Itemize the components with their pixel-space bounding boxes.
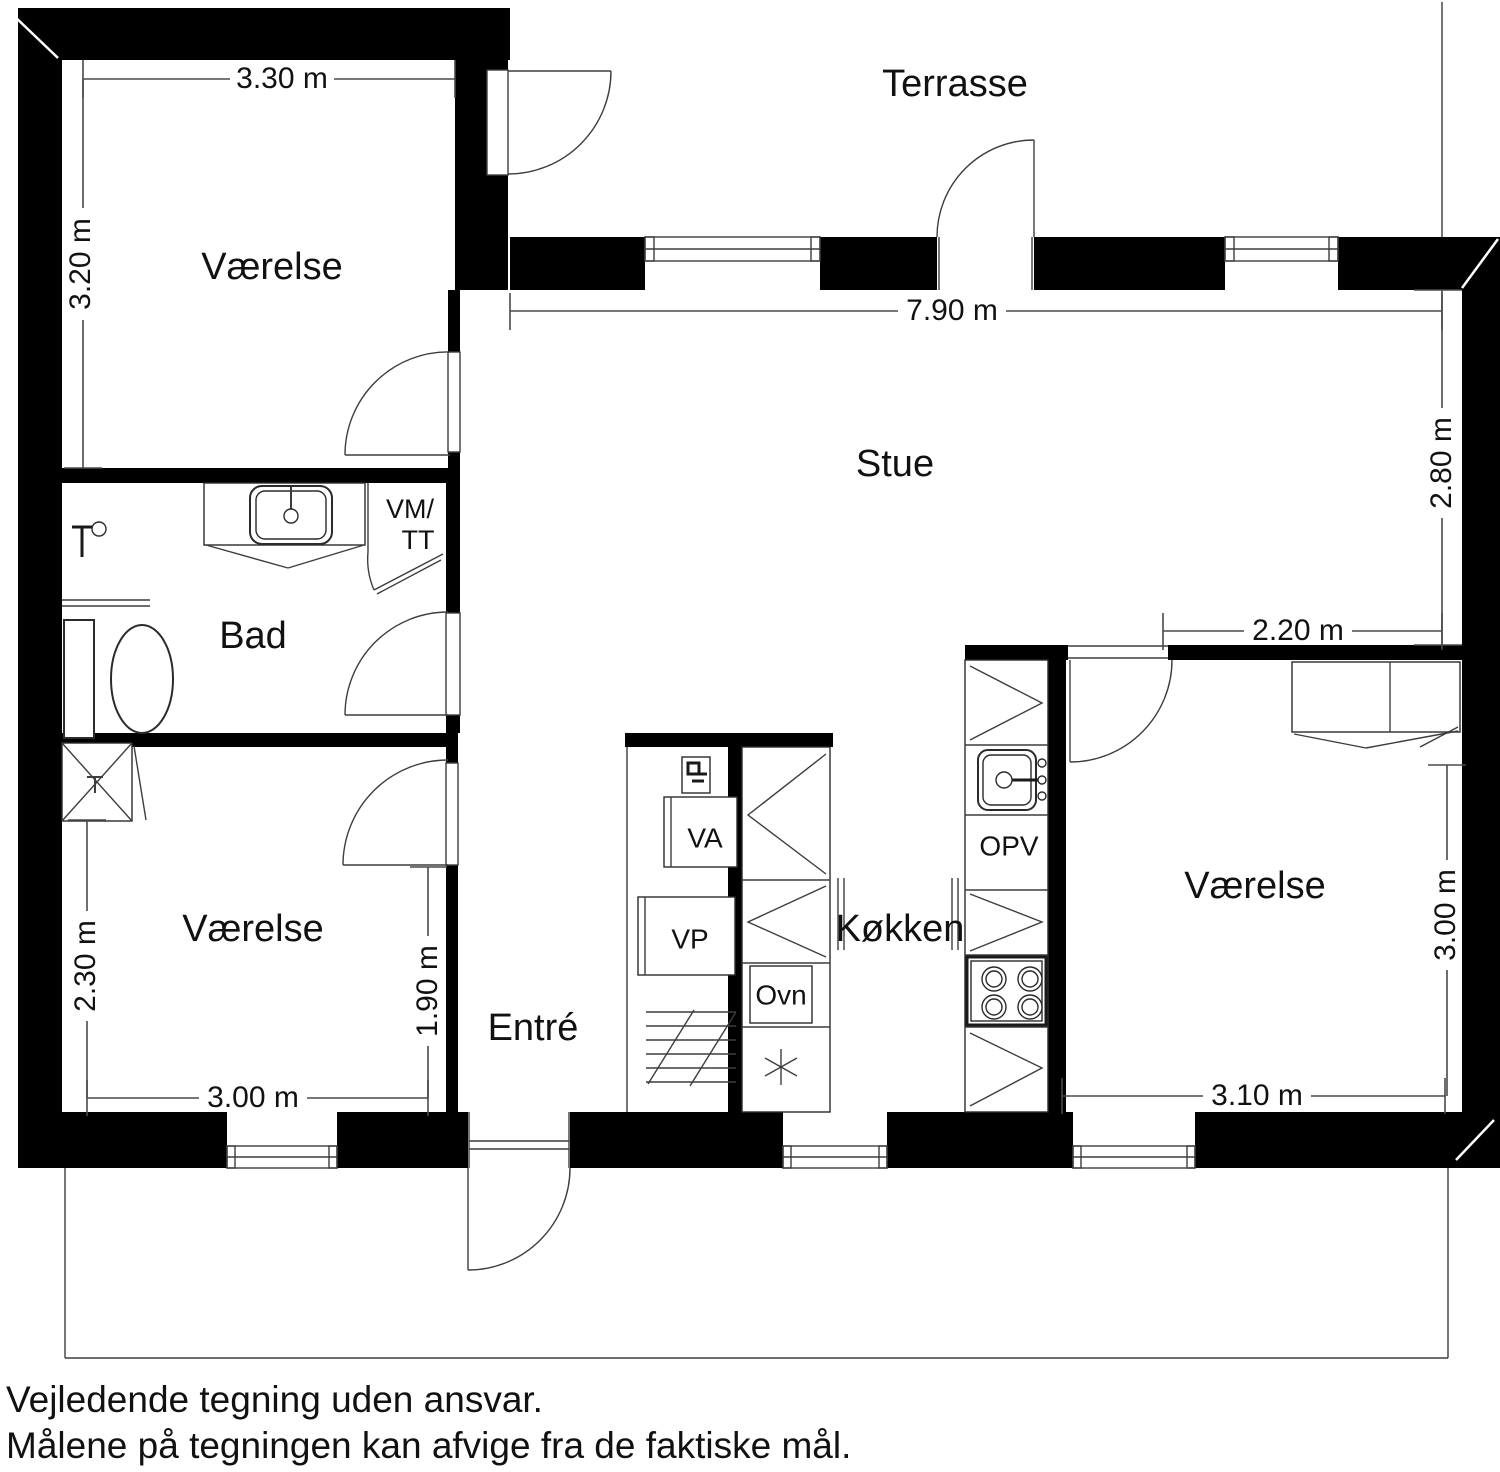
wall-segment <box>1046 652 1066 1112</box>
wall-segment <box>448 290 460 352</box>
wardrobe-bedroom-bl <box>62 743 146 821</box>
window <box>645 237 820 290</box>
wall-segment <box>446 715 460 733</box>
dim-label: 3.00 m <box>1429 869 1462 961</box>
dim-bedroom-bl-width: 3.00 m <box>87 1080 428 1116</box>
disclaimer-line-1: Vejledende tegning uden ansvar. <box>6 1379 543 1420</box>
door-bathroom <box>345 612 460 715</box>
disclaimer: Vejledende tegning uden ansvar. Målene p… <box>6 1379 851 1466</box>
door-bedroom-bl <box>343 760 458 865</box>
dim-label: 2.30 m <box>69 920 102 1012</box>
electrical-panel-icon <box>682 757 710 793</box>
kitchen-units: Ovn <box>742 660 1048 1112</box>
door-entrance <box>468 1112 570 1270</box>
dim-label: 3.30 m <box>236 62 328 95</box>
shower-valve <box>72 522 106 557</box>
bedroom-right-label: Værelse <box>1184 865 1326 907</box>
va-unit: VA <box>664 797 737 867</box>
utility-closet-label-1: VM/ <box>386 494 435 524</box>
window <box>1073 1112 1195 1168</box>
wall-segment <box>1168 645 1462 660</box>
dim-bedroom-bl-height-left: 2.30 m <box>68 820 106 1098</box>
wall-segment <box>18 8 510 60</box>
wall-segment <box>455 175 508 290</box>
window <box>783 1112 887 1168</box>
kitchen-right-cabinets: OPV <box>965 660 1048 1112</box>
dim-bedroom-tl-width: 3.30 m <box>83 60 455 98</box>
window <box>1225 237 1338 290</box>
bathroom-sink <box>204 483 365 568</box>
door-terrace-bedroom <box>487 70 611 175</box>
utility-closet-label-2: TT <box>402 525 435 555</box>
dim-label: 3.00 m <box>207 1081 299 1114</box>
oven: Ovn <box>750 966 812 1023</box>
disclaimer-line-2: Målene på tegningen kan afvige fra de fa… <box>6 1425 851 1466</box>
dim-label: 3.20 m <box>64 218 97 310</box>
wall-segment <box>446 483 460 613</box>
vp-unit: VP <box>638 897 735 975</box>
wall-segment <box>446 865 458 1112</box>
bathroom-fixtures <box>62 483 365 738</box>
dim-living-width: 7.90 m <box>510 293 1442 330</box>
toilet <box>64 620 173 738</box>
closet-shelves <box>646 1010 736 1086</box>
vp-label: VP <box>671 923 708 954</box>
kitchen-label: Køkken <box>836 908 965 950</box>
terrace-label: Terrasse <box>882 63 1028 105</box>
wall-segment <box>1462 237 1500 1168</box>
door-bedroom-tl <box>345 352 460 455</box>
wall-segment <box>625 733 833 747</box>
bedroom-tl-label: Værelse <box>201 246 343 288</box>
kitchen-left-cabinets: Ovn <box>742 747 830 1112</box>
wall-segment <box>455 8 508 70</box>
floor-plan-drawing: VA VP Ovn <box>0 0 1500 1472</box>
dim-bedroom-bl-height-right: 1.90 m <box>410 867 447 1098</box>
dim-bedroom-r-width: 3.10 m <box>1062 1078 1445 1114</box>
dishwasher-label: OPV <box>979 830 1038 861</box>
utility-closet: VA VP <box>627 747 737 1112</box>
dim-label: 2.20 m <box>1252 614 1344 647</box>
bathroom-label: Bad <box>219 615 287 657</box>
oven-label: Ovn <box>755 979 806 1010</box>
door-terrace-living <box>937 140 1034 290</box>
wall-segment <box>18 8 62 1168</box>
dim-label: 2.80 m <box>1425 417 1458 509</box>
dim-living-height: 2.80 m <box>1414 290 1462 645</box>
bedroom-bl-label: Værelse <box>182 908 324 950</box>
dim-bedroom-r-top: 2.20 m <box>1163 613 1442 650</box>
dim-bedroom-tl-height: 3.20 m <box>64 79 102 468</box>
kitchen-sink <box>978 750 1046 810</box>
wall-segment <box>455 70 487 175</box>
wardrobe-bedroom-right <box>1292 662 1460 748</box>
living-room-label: Stue <box>856 443 934 485</box>
dim-label: 7.90 m <box>906 294 998 327</box>
shower-partition <box>62 600 150 606</box>
window <box>227 1112 337 1168</box>
dim-bedroom-r-height: 3.00 m <box>1428 765 1466 1096</box>
wall-segment <box>60 468 455 483</box>
dim-label: 1.90 m <box>411 945 444 1037</box>
door-bedroom-right <box>1068 645 1172 762</box>
floor-plan-page: VA VP Ovn <box>0 0 1500 1472</box>
entrance-label: Entré <box>488 1007 579 1049</box>
va-label: VA <box>687 822 723 853</box>
dim-label: 3.10 m <box>1211 1079 1303 1112</box>
stove <box>967 957 1046 1025</box>
